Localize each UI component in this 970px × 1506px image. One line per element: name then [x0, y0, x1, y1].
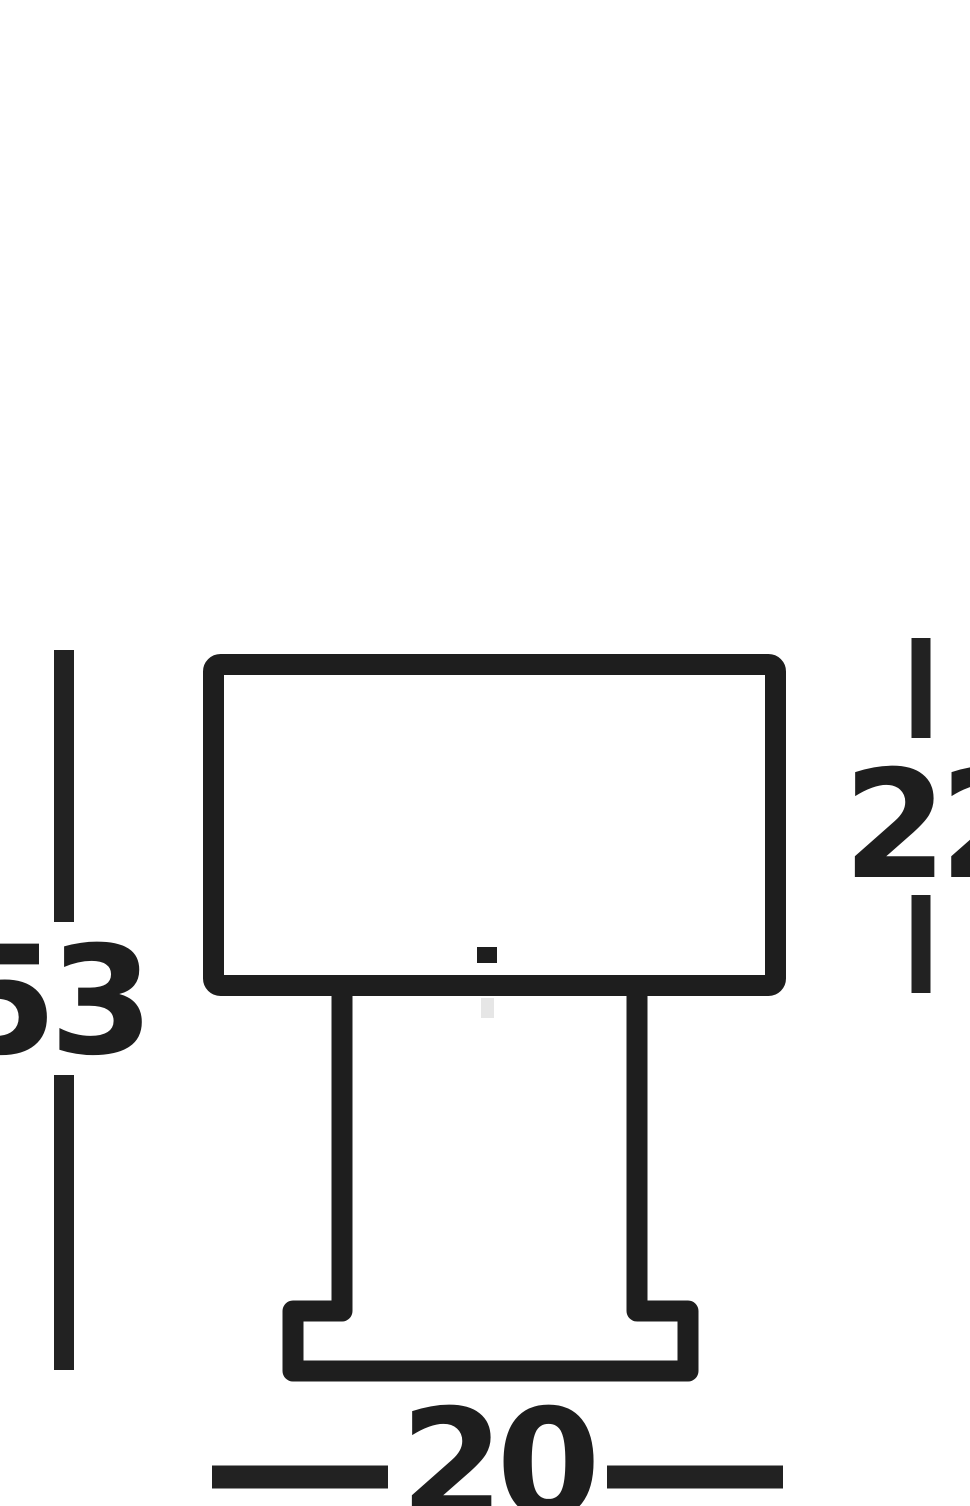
lamp-outline: [214, 665, 776, 1372]
dimension-diagram: 53 22 20: [0, 0, 970, 1506]
diagram-canvas: 53 22 20: [0, 0, 970, 1506]
socket-seam-tick: [477, 947, 497, 963]
shade-height-label: 22: [843, 739, 970, 913]
socket-seam-faint-tick: [481, 998, 494, 1018]
lamp-column-base-outline: [293, 986, 688, 1371]
base-width-label: 20: [400, 1378, 594, 1506]
lamp-shade-outline: [214, 665, 776, 986]
overall-height-label: 53: [0, 915, 146, 1089]
